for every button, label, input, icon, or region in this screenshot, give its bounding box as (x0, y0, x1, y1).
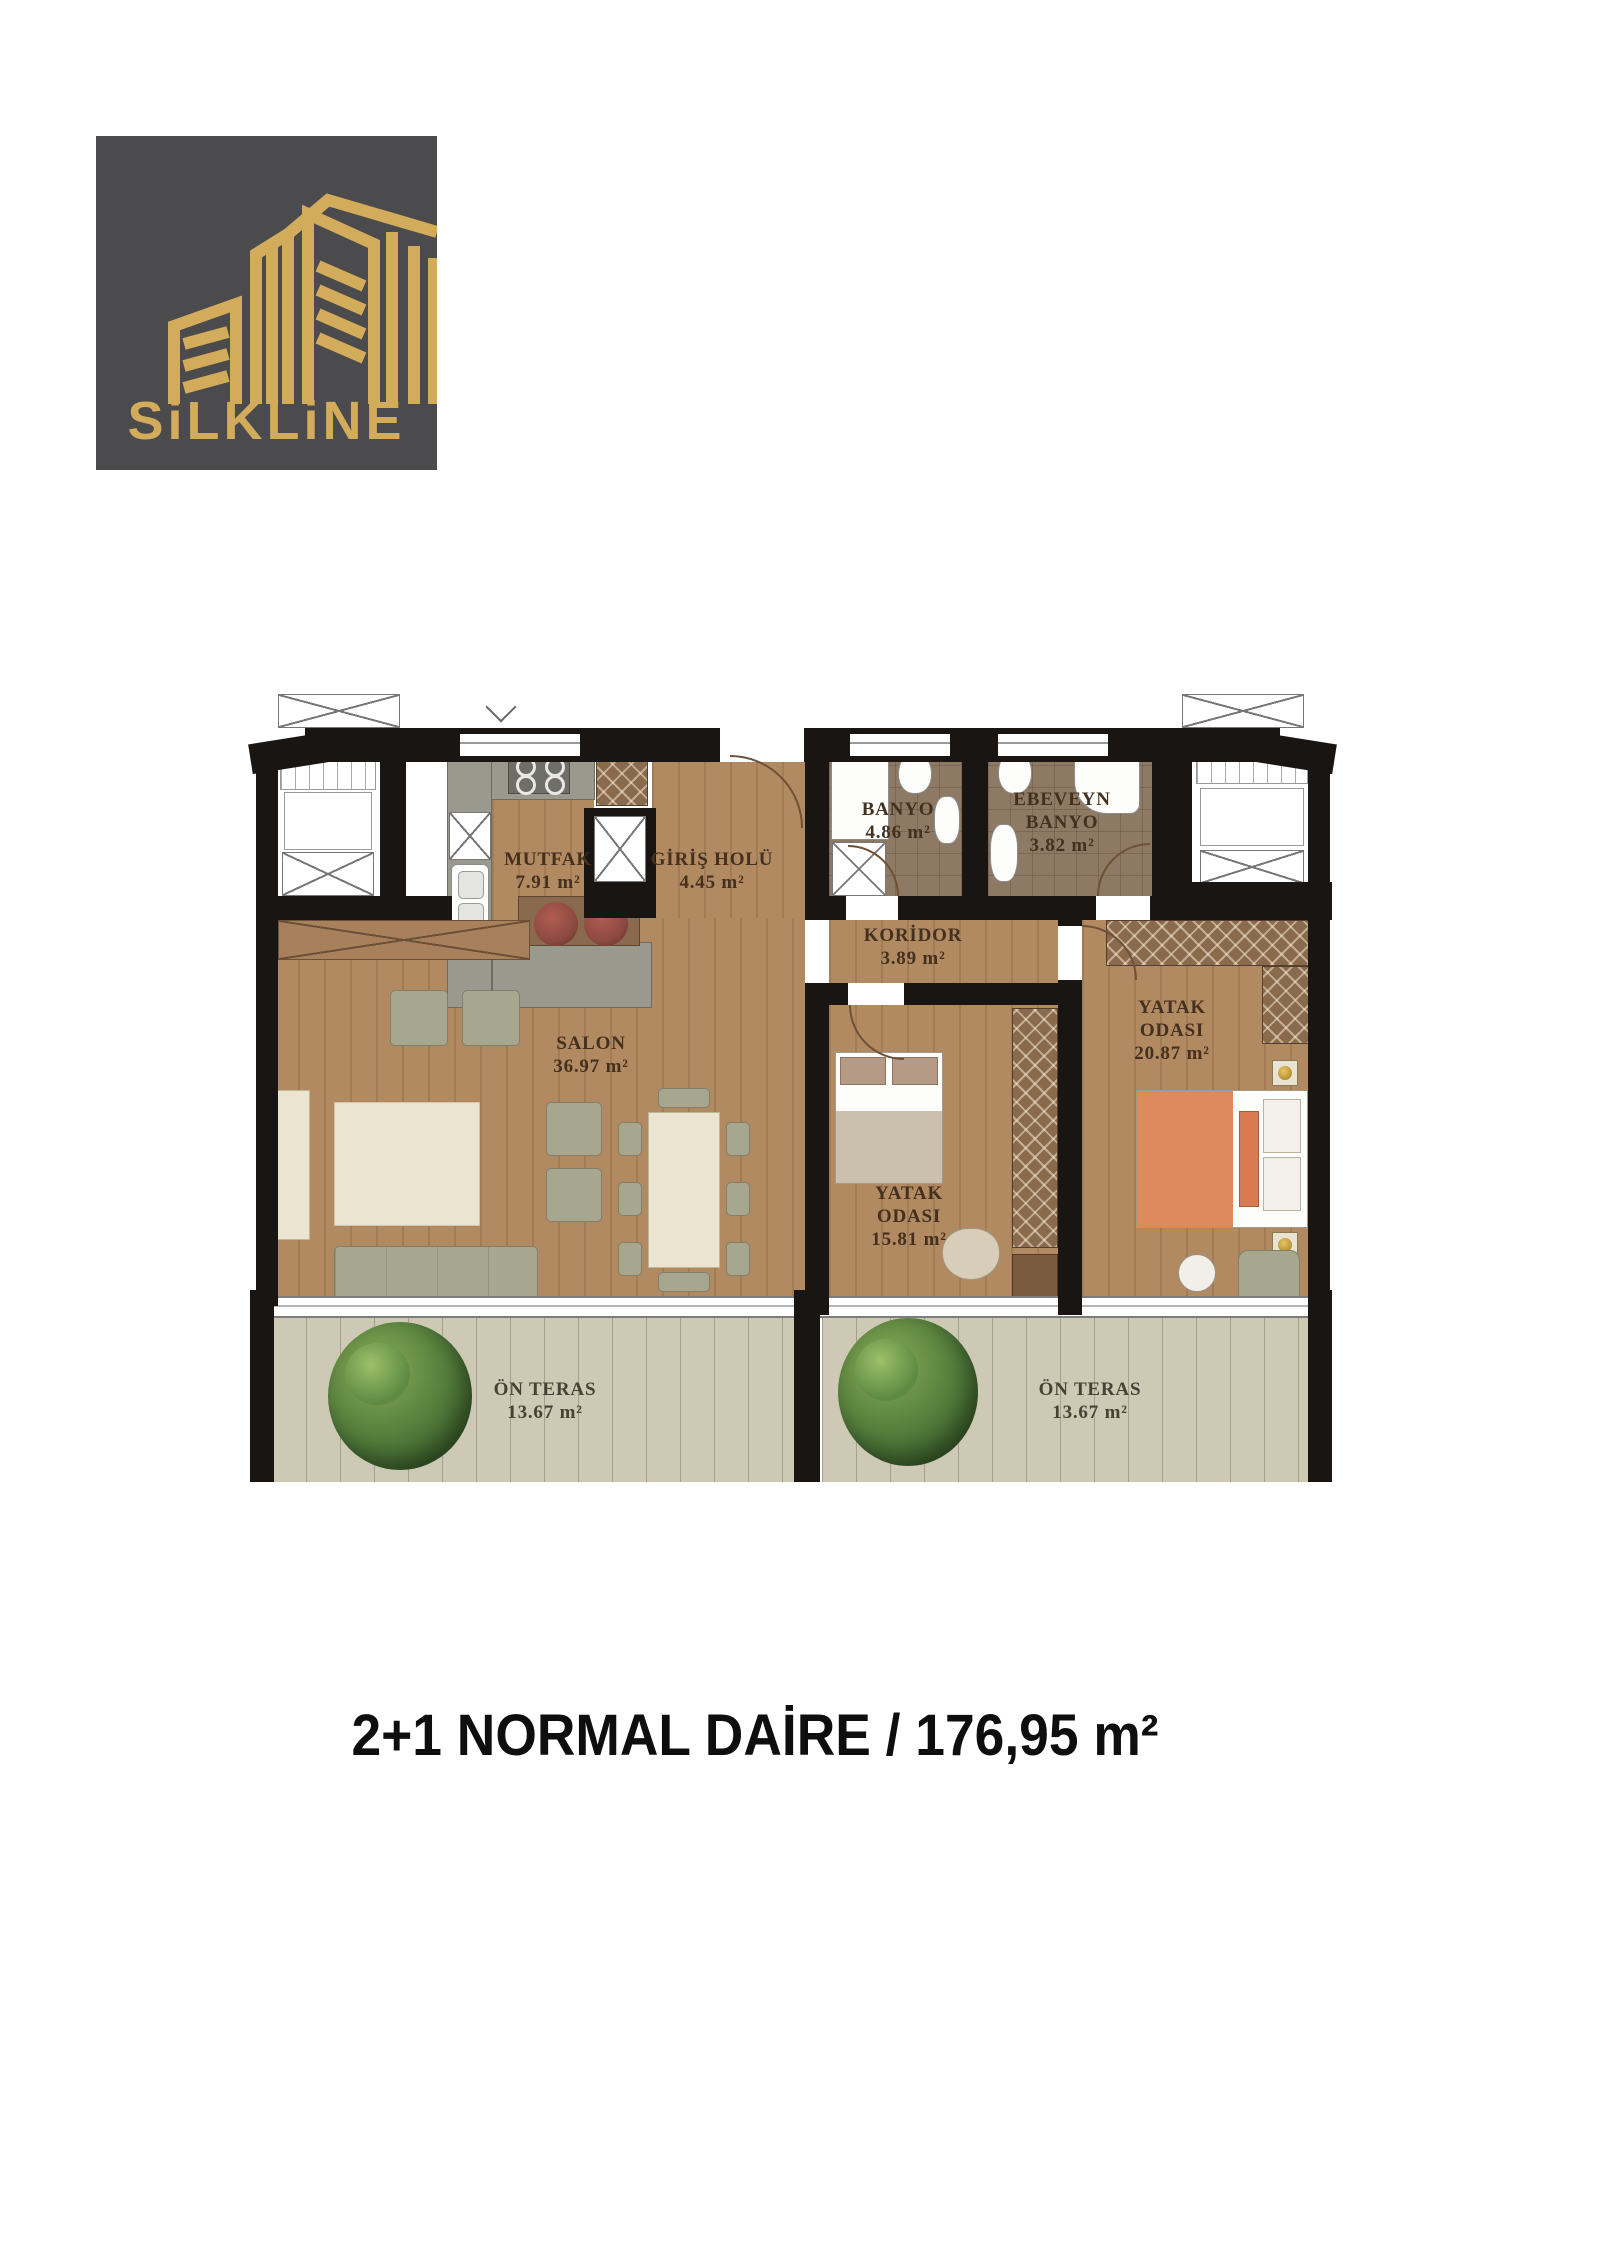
room-label-ebeveyn-banyo: EBEVEYN BANYO 3.82 m² (992, 788, 1132, 857)
listing-page: SiLKLiNE (0, 0, 1600, 2263)
room-area: 4.86 m² (838, 821, 958, 844)
room-area: 20.87 m² (1102, 1042, 1242, 1065)
room-area: 36.97 m² (511, 1055, 671, 1078)
room-area: 4.45 m² (632, 871, 792, 894)
room-area: 7.91 m² (468, 871, 628, 894)
room-name: ODASI (839, 1205, 979, 1228)
room-name: ÖN TERAS (1010, 1378, 1170, 1401)
room-label-mutfak: MUTFAK 7.91 m² (468, 848, 628, 894)
room-name: EBEVEYN (992, 788, 1132, 811)
room-area: 13.67 m² (465, 1401, 625, 1424)
room-area: 3.89 m² (833, 947, 993, 970)
room-label-yatak-odasi-1: YATAK ODASI 20.87 m² (1102, 996, 1242, 1065)
room-name: ÖN TERAS (465, 1378, 625, 1401)
room-label-yatak-odasi-2: YATAK ODASI 15.81 m² (839, 1182, 979, 1251)
room-label-giris-holu: GİRİŞ HOLÜ 4.45 m² (632, 848, 792, 894)
room-name: ODASI (1102, 1019, 1242, 1042)
room-label-salon: SALON 36.97 m² (511, 1032, 671, 1078)
room-name: KORİDOR (833, 924, 993, 947)
room-area: 13.67 m² (1010, 1401, 1170, 1424)
room-name: MUTFAK (468, 848, 628, 871)
room-label-on-teras-sol: ÖN TERAS 13.67 m² (465, 1378, 625, 1424)
room-name: SALON (511, 1032, 671, 1055)
silkline-logo: SiLKLiNE (96, 136, 437, 470)
room-name: GİRİŞ HOLÜ (632, 848, 792, 871)
room-area: 15.81 m² (839, 1228, 979, 1251)
room-name: BANYO (992, 811, 1132, 834)
room-name: YATAK (839, 1182, 979, 1205)
apartment-type-caption: 2+1 NORMAL DAİRE / 176,95 m² (290, 1702, 1219, 1769)
room-label-koridor: KORİDOR 3.89 m² (833, 924, 993, 970)
room-area: 3.82 m² (992, 834, 1132, 857)
door-swing-arcs (250, 690, 1335, 1500)
room-name: YATAK (1102, 996, 1242, 1019)
buildings-icon (96, 136, 437, 406)
floor-plan: MUTFAK 7.91 m² GİRİŞ HOLÜ 4.45 m² BANYO … (250, 690, 1335, 1500)
room-label-on-teras-sag: ÖN TERAS 13.67 m² (1010, 1378, 1170, 1424)
room-name: BANYO (838, 798, 958, 821)
room-label-banyo: BANYO 4.86 m² (838, 798, 958, 844)
brand-wordmark: SiLKLiNE (96, 390, 437, 452)
